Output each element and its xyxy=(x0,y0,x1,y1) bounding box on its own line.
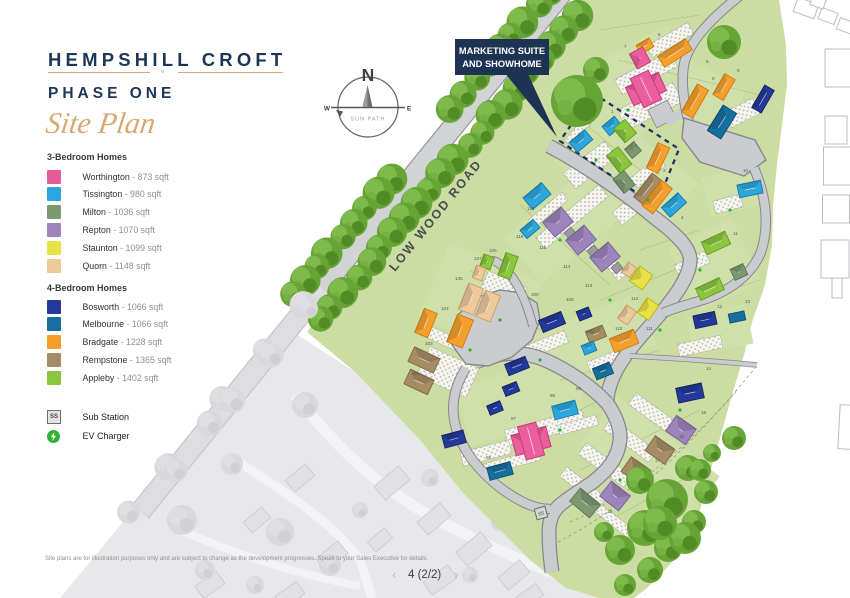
svg-text:112: 112 xyxy=(631,296,639,301)
svg-text:6: 6 xyxy=(658,32,661,37)
svg-text:100: 100 xyxy=(531,292,539,297)
svg-text:7: 7 xyxy=(624,44,627,49)
svg-text:135: 135 xyxy=(455,276,463,281)
svg-text:3: 3 xyxy=(663,168,666,173)
svg-text:115: 115 xyxy=(539,245,547,250)
svg-text:10: 10 xyxy=(743,168,749,173)
svg-text:98: 98 xyxy=(550,393,556,398)
svg-text:110: 110 xyxy=(615,326,623,331)
svg-text:116: 116 xyxy=(516,234,524,239)
svg-text:SUN PATH: SUN PATH xyxy=(351,117,386,123)
svg-text:12: 12 xyxy=(717,304,723,309)
svg-text:11: 11 xyxy=(733,231,738,236)
svg-text:19: 19 xyxy=(607,509,613,514)
svg-text:15: 15 xyxy=(701,410,707,415)
svg-text:17: 17 xyxy=(655,458,661,463)
svg-text:1: 1 xyxy=(611,109,614,114)
svg-text:103: 103 xyxy=(425,341,433,346)
svg-text:2: 2 xyxy=(634,143,637,148)
svg-text:MARKETING SUITE: MARKETING SUITE xyxy=(459,46,545,56)
svg-text:99: 99 xyxy=(576,386,582,391)
svg-text:106: 106 xyxy=(489,248,497,253)
svg-text:113: 113 xyxy=(585,283,593,288)
svg-text:118: 118 xyxy=(527,206,535,211)
svg-text:104: 104 xyxy=(441,306,449,311)
svg-text:16: 16 xyxy=(679,434,685,439)
svg-text:9: 9 xyxy=(737,68,740,73)
svg-text:5: 5 xyxy=(706,59,709,64)
svg-text:114: 114 xyxy=(563,264,571,269)
svg-text:109: 109 xyxy=(586,329,594,334)
svg-text:N: N xyxy=(362,65,375,85)
svg-text:4: 4 xyxy=(681,215,684,220)
svg-text:W: W xyxy=(324,106,331,113)
svg-text:137: 137 xyxy=(474,256,482,261)
svg-text:97: 97 xyxy=(511,416,517,421)
svg-text:108: 108 xyxy=(566,297,574,302)
svg-text:13: 13 xyxy=(745,299,751,304)
svg-text:AND SHOWHOME: AND SHOWHOME xyxy=(462,59,542,69)
svg-text:96: 96 xyxy=(486,455,492,460)
svg-text:E: E xyxy=(407,106,412,113)
svg-text:111: 111 xyxy=(646,326,653,331)
svg-text:8: 8 xyxy=(712,76,715,81)
svg-text:14: 14 xyxy=(706,366,712,371)
svg-text:102: 102 xyxy=(411,371,419,376)
